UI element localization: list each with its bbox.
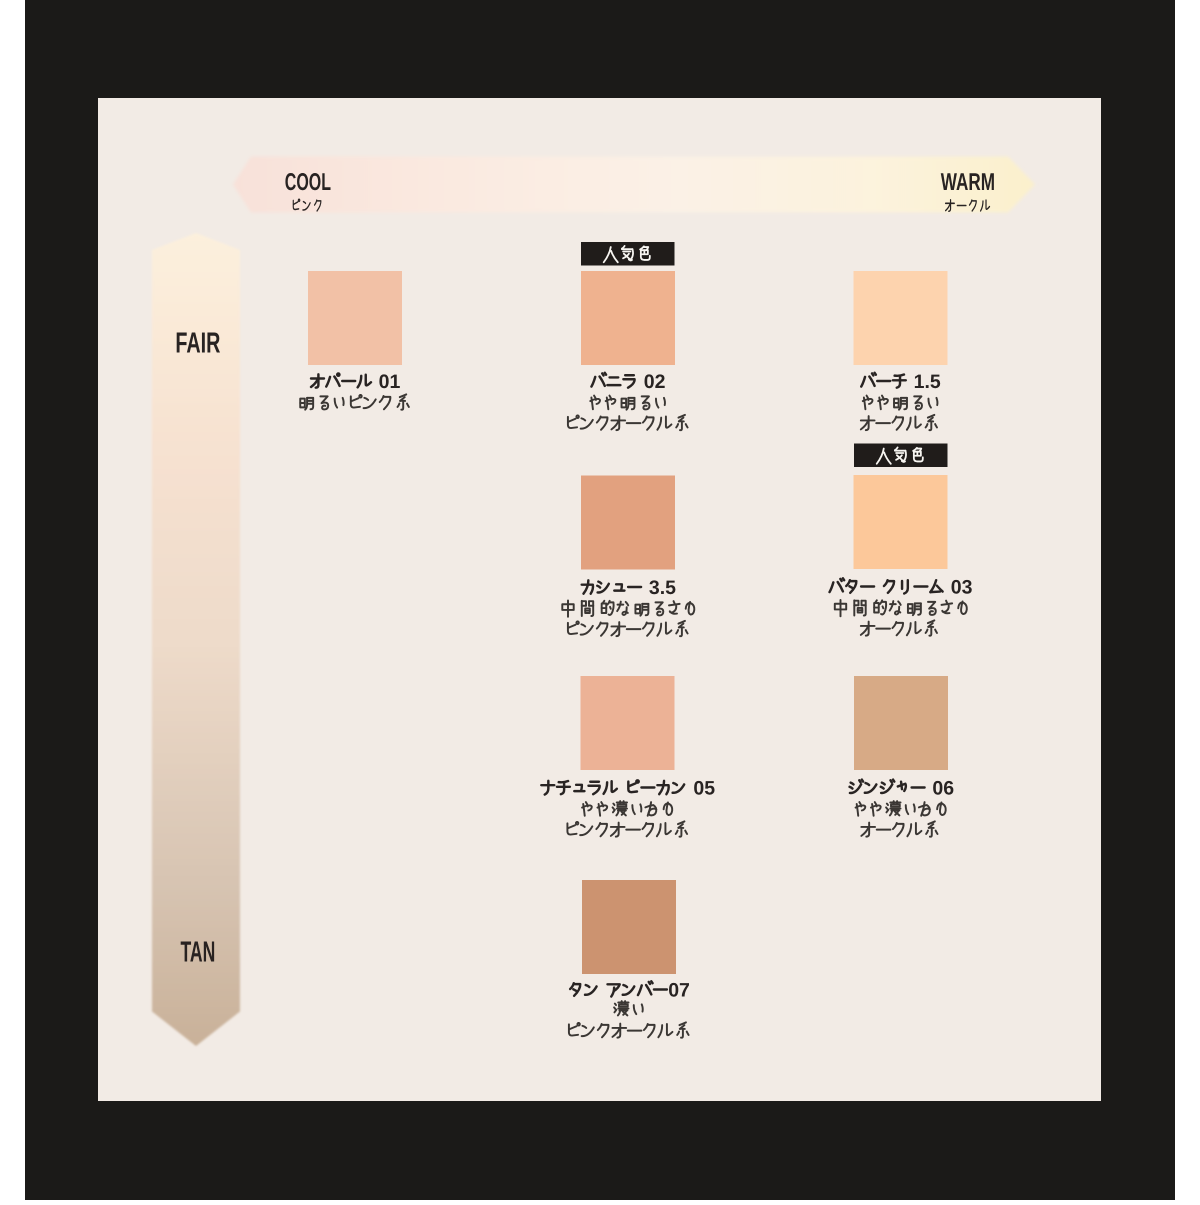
svg-text:3.5: 3.5 — [649, 577, 676, 599]
svg-text:07: 07 — [668, 980, 690, 1002]
svg-text:WARM: WARM — [941, 169, 995, 196]
svg-text:06: 06 — [932, 778, 954, 800]
svg-text:05: 05 — [693, 778, 715, 800]
svg-text:02: 02 — [644, 371, 666, 393]
svg-text:03: 03 — [951, 577, 973, 599]
svg-text:FAIR: FAIR — [175, 328, 220, 360]
svg-text:01: 01 — [379, 371, 401, 393]
svg-text:1.5: 1.5 — [914, 371, 941, 393]
svg-text:COOL: COOL — [285, 169, 331, 196]
svg-text:TAN: TAN — [180, 937, 215, 969]
